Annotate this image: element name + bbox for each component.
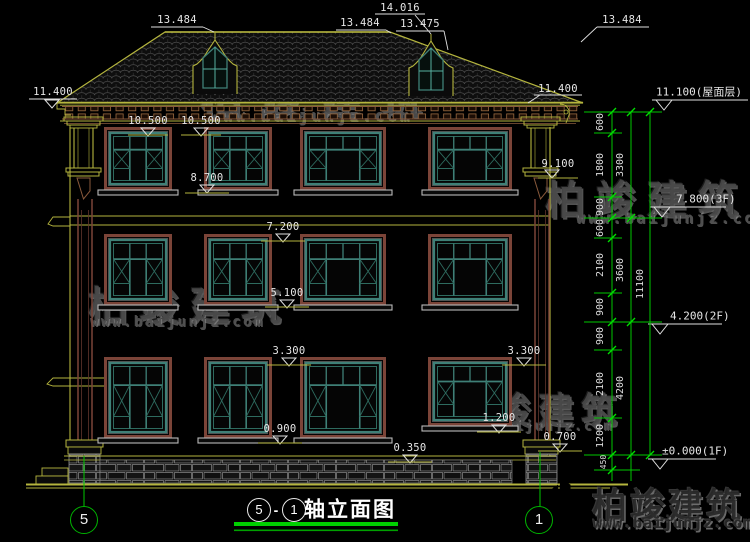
chain-seg: 600 <box>596 219 606 237</box>
dim-0900: 0.900 <box>263 424 296 435</box>
chain-seg: 2100 <box>596 253 606 277</box>
level-roof: 11.100(屋面层) <box>656 87 742 98</box>
chain-group: 3600 <box>616 258 626 282</box>
dim-eave-left: 11.400 <box>33 87 73 98</box>
cad-elevation-screenshot: 柏竣建筑 www.baijunjz.com 柏竣建筑 www.baijunjz.… <box>0 0 750 542</box>
dim-ridge-left: 13.484 <box>157 15 197 26</box>
dim-0350: 0.350 <box>393 443 426 454</box>
dim-eave-right: 11.400 <box>538 84 578 95</box>
chain-seg: 900 <box>596 298 606 316</box>
dim-7200: 7.200 <box>266 222 299 233</box>
dim-9100: 9.100 <box>541 159 574 170</box>
chain-group: 4200 <box>616 376 626 400</box>
dim-3300-r: 3.300 <box>507 346 540 357</box>
level-3f: 7.800(3F) <box>676 194 736 205</box>
title-dash: - <box>274 503 279 517</box>
dim-0700: 0.700 <box>543 432 576 443</box>
dim-1200: 1.200 <box>482 413 515 424</box>
dim-roof-right: 13.484 <box>602 15 642 26</box>
dim-10500-a: 10.500 <box>128 116 168 127</box>
dim-dormer-tip: 14.016 <box>380 3 420 14</box>
chain-seg: 900 <box>596 198 606 216</box>
axis-bubble-1: 1 <box>525 506 553 534</box>
chain-seg: 900 <box>596 327 606 345</box>
dim-ridge-right: 13.484 <box>340 18 380 29</box>
chain-seg: 1800 <box>596 153 606 177</box>
dim-3300-c: 3.300 <box>272 346 305 357</box>
label-layer: 13.484 13.484 14.016 13.475 13.484 11.40… <box>0 0 750 542</box>
dim-8700: 8.700 <box>190 173 223 184</box>
level-1f: ±0.000(1F) <box>662 446 728 457</box>
level-2f: 4.200(2F) <box>670 311 730 322</box>
dim-5100: 5.100 <box>270 288 303 299</box>
chain-group: 3300 <box>616 153 626 177</box>
title-axis-to: 1 <box>282 498 306 522</box>
title-axis-from: 5 <box>247 498 271 522</box>
dim-10500-b: 10.500 <box>181 116 221 127</box>
chain-seg: 2100 <box>596 372 606 396</box>
chain-below: 450 <box>600 455 608 469</box>
dim-dormer-eave: 13.475 <box>400 19 440 30</box>
chain-seg: 600 <box>596 113 606 131</box>
chain-seg: 1200 <box>596 424 606 448</box>
axis-bubble-5: 5 <box>70 506 98 534</box>
chain-total: 11100 <box>636 269 646 299</box>
title-text: 轴立面图 <box>304 500 396 521</box>
